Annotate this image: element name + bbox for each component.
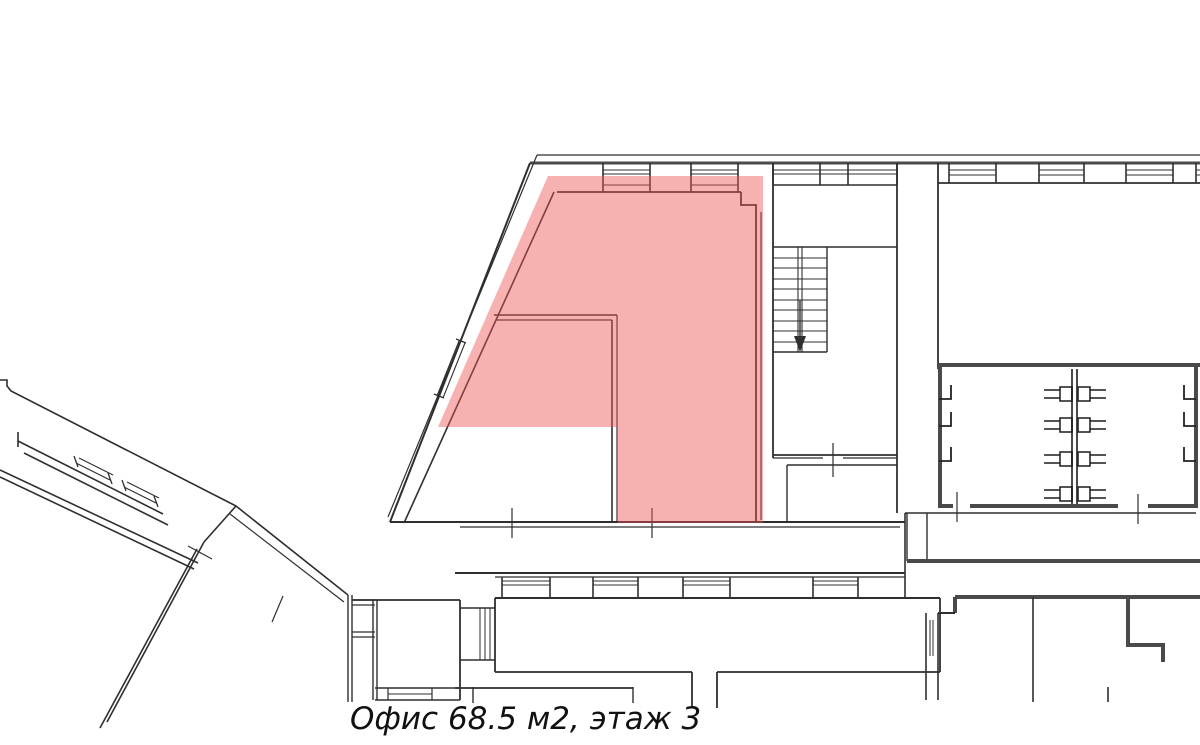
- floor-plan-page: Офис 68.5 м2, этаж 3: [0, 0, 1200, 745]
- wall-niche-icons: [939, 385, 1196, 461]
- bottom-section: [348, 595, 1200, 708]
- left-wing: [0, 380, 348, 728]
- corridor-windows-icon: [502, 577, 858, 598]
- radiator-rooms: [905, 365, 1200, 524]
- office-highlight: [438, 176, 763, 523]
- stair-down-arrow-icon: [794, 300, 806, 352]
- stairwell: [773, 163, 897, 522]
- wing-corridor-tick: [272, 596, 283, 622]
- corridor: [390, 508, 1200, 598]
- radiator-icons: [1044, 387, 1106, 501]
- right-room-windows-icon: [949, 163, 1200, 183]
- floor-caption: Офис 68.5 м2, этаж 3: [350, 701, 701, 737]
- large-right-room: [938, 163, 1200, 369]
- floor-plan-image: Офис 68.5 м2, этаж 3: [0, 0, 1200, 745]
